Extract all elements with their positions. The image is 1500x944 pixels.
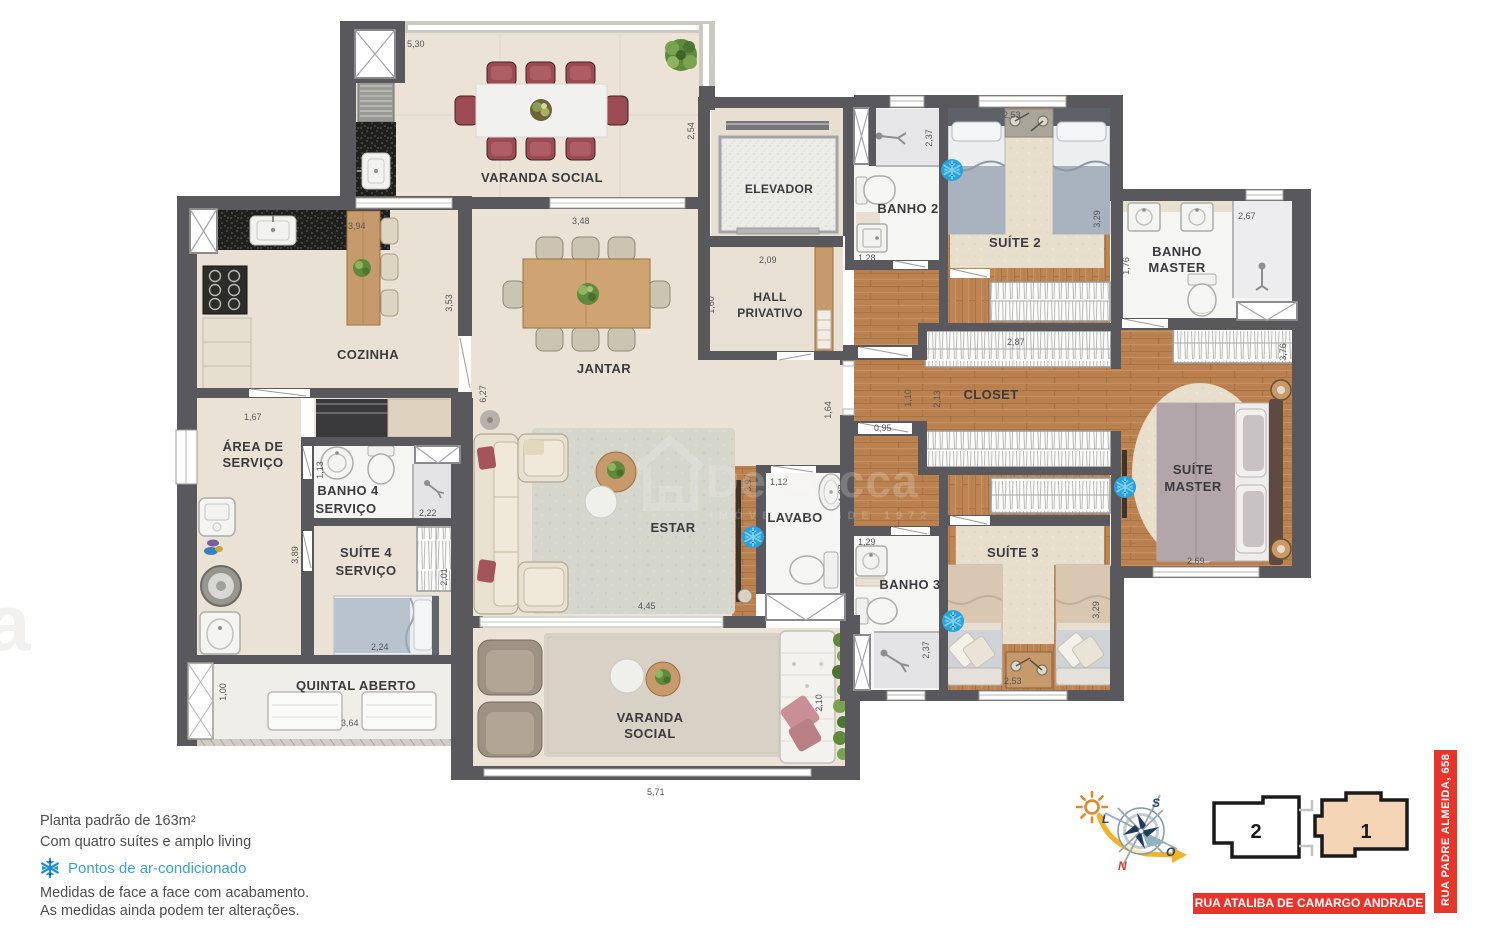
svg-text:3,29: 3,29 bbox=[1091, 601, 1101, 619]
svg-text:SUÍTE 4: SUÍTE 4 bbox=[340, 545, 392, 560]
svg-text:Com quatro suítes e amplo livi: Com quatro suítes e amplo living bbox=[40, 834, 251, 850]
svg-text:1,67: 1,67 bbox=[244, 412, 262, 422]
svg-text:2,53: 2,53 bbox=[1004, 676, 1022, 686]
svg-text:O: O bbox=[1166, 845, 1176, 859]
svg-text:N: N bbox=[1118, 859, 1127, 873]
svg-text:BANHO: BANHO bbox=[1152, 244, 1202, 259]
svg-text:S: S bbox=[1152, 796, 1160, 810]
svg-text:1,60: 1,60 bbox=[706, 296, 716, 314]
svg-text:As medidas ainda podem ter alt: As medidas ainda podem ter alterações. bbox=[40, 903, 300, 919]
svg-text:3,53: 3,53 bbox=[444, 294, 454, 312]
svg-text:BANHO 4: BANHO 4 bbox=[317, 483, 379, 498]
svg-text:IMÓVEIS DESDE 1972: IMÓVEIS DESDE 1972 bbox=[710, 509, 932, 522]
svg-text:2,67: 2,67 bbox=[1238, 211, 1256, 221]
svg-text:4,45: 4,45 bbox=[638, 601, 656, 611]
svg-text:1,13: 1,13 bbox=[315, 461, 325, 479]
svg-text:2,10: 2,10 bbox=[814, 694, 824, 712]
svg-text:a: a bbox=[0, 578, 31, 667]
svg-text:6,27: 6,27 bbox=[478, 385, 488, 403]
svg-text:3,94: 3,94 bbox=[348, 221, 366, 231]
svg-text:ESTAR: ESTAR bbox=[650, 520, 695, 535]
svg-text:SOCIAL: SOCIAL bbox=[624, 726, 676, 741]
svg-text:JANTAR: JANTAR bbox=[577, 361, 631, 376]
svg-text:3,89: 3,89 bbox=[290, 546, 300, 564]
svg-text:3,64: 3,64 bbox=[341, 718, 359, 728]
svg-text:1,76: 1,76 bbox=[1121, 257, 1131, 275]
svg-text:VARANDA: VARANDA bbox=[617, 710, 684, 725]
svg-text:1,10: 1,10 bbox=[903, 389, 913, 407]
svg-text:L: L bbox=[1102, 812, 1109, 826]
svg-text:BANHO 3: BANHO 3 bbox=[879, 577, 940, 592]
svg-text:2,13: 2,13 bbox=[932, 390, 942, 408]
svg-text:2,69: 2,69 bbox=[1187, 556, 1205, 566]
svg-text:COZINHA: COZINHA bbox=[337, 347, 399, 362]
svg-text:1,29: 1,29 bbox=[858, 537, 876, 547]
svg-text:5,30: 5,30 bbox=[407, 39, 425, 49]
svg-text:SUÍTE 3: SUÍTE 3 bbox=[987, 545, 1039, 560]
svg-text:2,37: 2,37 bbox=[924, 129, 934, 147]
svg-text:QUINTAL ABERTO: QUINTAL ABERTO bbox=[296, 678, 416, 693]
svg-text:2: 2 bbox=[1250, 821, 1261, 843]
svg-text:SERVIÇO: SERVIÇO bbox=[315, 501, 376, 516]
svg-text:BANHO 2: BANHO 2 bbox=[877, 201, 938, 216]
svg-text:1,64: 1,64 bbox=[823, 401, 833, 419]
svg-text:SERVIÇO: SERVIÇO bbox=[335, 563, 396, 578]
svg-text:2,01: 2,01 bbox=[439, 568, 449, 586]
svg-text:ELEVADOR: ELEVADOR bbox=[745, 182, 813, 196]
svg-text:2,24: 2,24 bbox=[371, 642, 389, 652]
svg-text:PRIVATIVO: PRIVATIVO bbox=[737, 306, 803, 320]
svg-text:SERVIÇO: SERVIÇO bbox=[222, 455, 283, 470]
svg-text:HALL: HALL bbox=[753, 290, 786, 304]
svg-text:3,48: 3,48 bbox=[572, 216, 590, 226]
svg-text:ÁREA DE: ÁREA DE bbox=[223, 439, 284, 454]
svg-text:MASTER: MASTER bbox=[1164, 479, 1222, 494]
svg-text:1: 1 bbox=[1360, 821, 1371, 843]
svg-text:2,22: 2,22 bbox=[419, 508, 437, 518]
svg-text:2,54: 2,54 bbox=[686, 122, 696, 140]
svg-text:RUA ATALIBA DE CAMARGO ANDRADE: RUA ATALIBA DE CAMARGO ANDRADE bbox=[1195, 896, 1423, 910]
svg-text:MASTER: MASTER bbox=[1148, 260, 1206, 275]
svg-text:3,76: 3,76 bbox=[1278, 343, 1288, 361]
svg-text:De Lucca: De Lucca bbox=[706, 455, 919, 507]
svg-text:5,71: 5,71 bbox=[647, 787, 665, 797]
svg-text:2,37: 2,37 bbox=[921, 641, 931, 659]
svg-text:SUÍTE: SUÍTE bbox=[1173, 462, 1213, 477]
svg-text:Pontos de ar-condicionado: Pontos de ar-condicionado bbox=[68, 860, 246, 877]
svg-text:1,28: 1,28 bbox=[858, 253, 876, 263]
svg-text:Medidas de face a face com aca: Medidas de face a face com acabamento. bbox=[40, 885, 309, 901]
svg-text:0,95: 0,95 bbox=[874, 423, 892, 433]
svg-text:RUA PADRE ALMEIDA, 658: RUA PADRE ALMEIDA, 658 bbox=[1440, 754, 1452, 906]
svg-text:2,87: 2,87 bbox=[1007, 337, 1025, 347]
svg-text:SUÍTE 2: SUÍTE 2 bbox=[989, 235, 1041, 250]
svg-text:1,00: 1,00 bbox=[218, 683, 228, 701]
svg-text:3,29: 3,29 bbox=[1092, 210, 1102, 228]
svg-text:2,09: 2,09 bbox=[759, 255, 777, 265]
svg-text:CLOSET: CLOSET bbox=[963, 387, 1018, 402]
svg-text:2,53: 2,53 bbox=[1003, 110, 1021, 120]
svg-text:VARANDA SOCIAL: VARANDA SOCIAL bbox=[481, 170, 603, 185]
svg-text:Planta padrão de 163m2: Planta padrão de 163m2 bbox=[40, 813, 196, 829]
